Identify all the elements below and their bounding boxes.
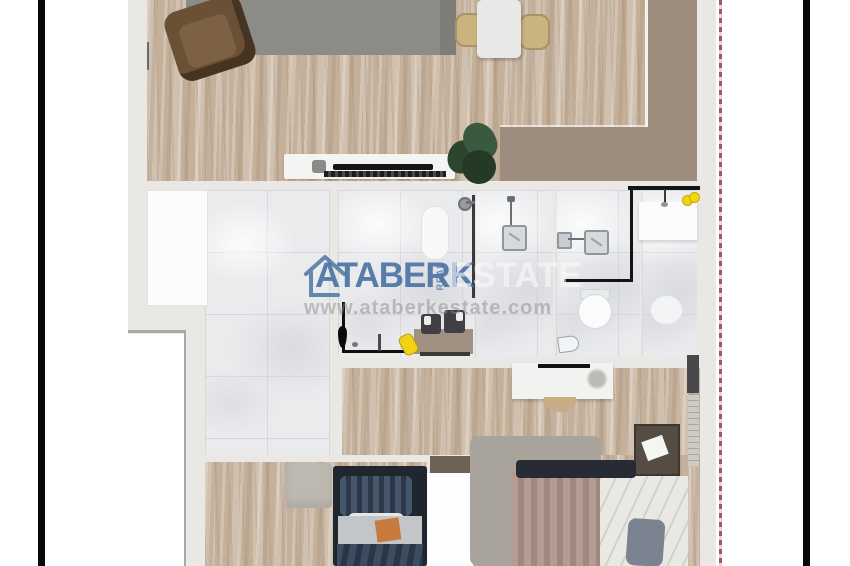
round-shower-head	[458, 197, 472, 211]
single-bed	[333, 466, 427, 566]
wall-fixture	[557, 232, 572, 249]
vanity-edge	[420, 352, 470, 356]
left-wall-door-mark	[147, 42, 149, 70]
tv	[333, 164, 433, 170]
wc-toilet	[650, 295, 683, 325]
plan-exterior-cutout	[128, 334, 184, 566]
note-card	[641, 435, 669, 461]
terrace-floor-right	[648, 0, 697, 181]
corridor-white-nook	[427, 473, 473, 566]
interior-wall-block	[430, 456, 473, 473]
shower-arm-1	[466, 201, 475, 204]
accent-dashed-line	[719, 0, 722, 566]
glass-screen-3-v	[630, 190, 633, 282]
striped-blanket	[337, 544, 423, 566]
terrace-edge-line	[500, 125, 645, 127]
watermark-estate-text: ESTATE	[449, 256, 582, 296]
drain-dot	[352, 342, 358, 347]
rug-shadow-edge	[440, 0, 456, 55]
armchair-seat	[177, 12, 238, 69]
floor-plan-screenshot: ATABERK REAL ESTATE www.ataberkestate.co…	[0, 0, 850, 566]
wardrobe-mat	[286, 463, 332, 508]
washbasin	[421, 206, 449, 260]
dark-pillows	[516, 460, 636, 478]
dining-table	[477, 0, 521, 58]
watermark-website-text: www.ataberkestate.com	[304, 297, 552, 320]
square-shower-head-3	[584, 230, 609, 255]
right-black-frame-line	[803, 0, 810, 566]
square-shower-head-2	[502, 225, 527, 251]
shower-valve-2	[507, 196, 515, 202]
boundary-step-line-h	[128, 330, 186, 333]
potted-plant-icon	[444, 120, 502, 186]
wc-faucet-base	[661, 202, 668, 207]
entry-hall-floor	[205, 190, 330, 455]
toilet	[578, 294, 612, 329]
left-black-frame-line	[38, 0, 45, 566]
watermark-small-text: REAL	[435, 262, 445, 291]
tv-base	[324, 171, 446, 177]
double-bed	[510, 459, 688, 566]
shower-arm-2	[510, 201, 512, 225]
yellow-glasses	[682, 192, 699, 207]
striped-pillow	[340, 476, 412, 516]
shower-arm-3	[568, 238, 584, 240]
wall-shelf	[687, 355, 699, 393]
terrace-wall-line	[645, 0, 648, 127]
fixture-stick	[378, 334, 381, 351]
orange-cushion	[375, 517, 402, 542]
dining-chair-right	[519, 14, 550, 50]
deco-plant	[584, 366, 610, 392]
sink-counter	[639, 202, 697, 240]
dresser-handle	[538, 364, 590, 368]
light-well	[147, 190, 208, 306]
terrace-floor-bottom	[500, 127, 648, 181]
striped-duvet	[511, 470, 611, 566]
boundary-step-line-v	[184, 330, 186, 566]
book-strip	[688, 394, 699, 466]
gray-pillow	[625, 518, 665, 566]
